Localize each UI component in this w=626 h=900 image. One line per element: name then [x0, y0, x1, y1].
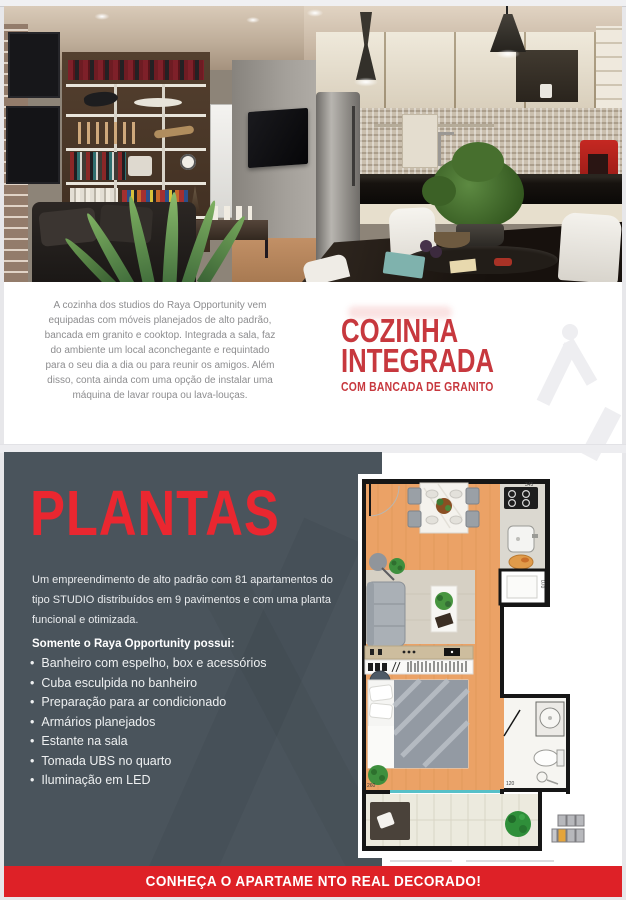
pillow: [369, 685, 393, 702]
shelf-board: [66, 84, 206, 87]
floor-lamp: [369, 553, 387, 571]
cutting-board: [509, 555, 533, 569]
cozinha-section: A cozinha dos studios do Raya Opportunit…: [4, 282, 622, 444]
feature-item: Preparação para ar condicionado: [30, 693, 267, 713]
tv: [248, 108, 308, 168]
figurines: [78, 122, 136, 144]
feature-item: Tomada UBS no quarto: [30, 752, 267, 772]
feature-item: Cuba esculpida no banheiro: [30, 674, 267, 694]
fridge-handle: [352, 106, 355, 186]
table-plant: [435, 592, 453, 610]
books-row: [68, 60, 204, 80]
coffee-machine-front: [588, 154, 608, 176]
books-row: [70, 152, 126, 180]
faucet-icon: [438, 132, 454, 135]
paper-roll: [128, 156, 152, 176]
window-panel: [402, 114, 438, 168]
pillow: [369, 703, 392, 719]
plan-dash: [390, 860, 452, 862]
features-list: Banheiro com espelho, box e acessórios C…: [30, 654, 267, 791]
title-line-2: INTEGRADA: [341, 346, 494, 376]
bed-sheet: [368, 726, 394, 768]
lamp-glow: [350, 76, 382, 88]
feature-item: Estante na sala: [30, 732, 267, 752]
sink: [508, 526, 534, 552]
fruit-bowl: [434, 232, 470, 248]
title-subtitle: COM BANCADA DE GRANITO: [341, 379, 498, 394]
plant: [368, 765, 388, 785]
dim-label: 260: [367, 783, 376, 789]
balcony-plant: [505, 811, 531, 837]
clock-icon: [180, 154, 196, 170]
hero-photo: [4, 6, 622, 282]
plantas-section: PLANTAS Um empreendimento de alto padrão…: [4, 452, 382, 866]
spotlight-icon: [244, 16, 262, 24]
building-key-plan: [548, 812, 588, 852]
dim-label: 345: [367, 798, 376, 804]
dim-label: 120: [506, 781, 515, 787]
features-heading: Somente o Raya Opportunity possui:: [32, 638, 235, 650]
watermark-logo: [562, 324, 578, 340]
cup: [540, 84, 552, 98]
floor-plan-card: 345 070 120 260 345: [358, 474, 570, 858]
section-title-cozinha: COZINHA INTEGRADA COM BANCADA DE GRANITO: [341, 316, 537, 394]
brochure-page: A cozinha dos studios do Raya Opportunit…: [0, 0, 626, 900]
cta-banner[interactable]: CONHEÇA O APARTAME NTO REAL DECORADO!: [4, 866, 622, 897]
wood-decor: [154, 125, 195, 138]
toilet-tank: [557, 750, 564, 766]
toilet: [534, 750, 558, 766]
dim-label: 345: [525, 482, 534, 488]
faucet-icon: [532, 534, 538, 538]
balcony-glass-door: [390, 790, 504, 793]
wall-frame: [8, 32, 60, 98]
grapes: [430, 246, 442, 258]
food-item: [494, 258, 512, 266]
feature-item: Armários planejados: [30, 713, 267, 733]
dim-label: 070: [539, 580, 545, 589]
plantas-intro: Um empreendimento de alto padrão com 81 …: [32, 570, 348, 630]
faucet-icon: [438, 132, 441, 166]
shelf-board: [66, 182, 206, 185]
intro-paragraph: A cozinha dos studios do Raya Opportunit…: [40, 298, 280, 403]
centerpiece-plant: [452, 142, 504, 182]
feature-item: Iluminação em LED: [30, 771, 267, 791]
highlighted-unit: [558, 829, 566, 842]
shelf-board: [66, 114, 206, 117]
centerpiece-plant: [422, 176, 456, 206]
floor-plan-image: 345 070 120 260 345: [358, 474, 570, 858]
plantas-title: PLANTAS: [30, 476, 280, 550]
wall-frame: [6, 106, 60, 184]
bowl-decor: [134, 98, 182, 107]
cta-label: CONHEÇA O APARTAME NTO REAL DECORADO!: [145, 873, 481, 890]
spotlight-icon: [92, 12, 112, 21]
feature-item: Banheiro com espelho, box e acessórios: [30, 654, 267, 674]
dining-chair: [558, 212, 622, 282]
plant: [389, 558, 405, 574]
lamp-glow: [492, 48, 524, 60]
shelf-board: [66, 148, 206, 151]
plan-dash: [466, 860, 554, 862]
spotlight-icon: [304, 8, 326, 18]
